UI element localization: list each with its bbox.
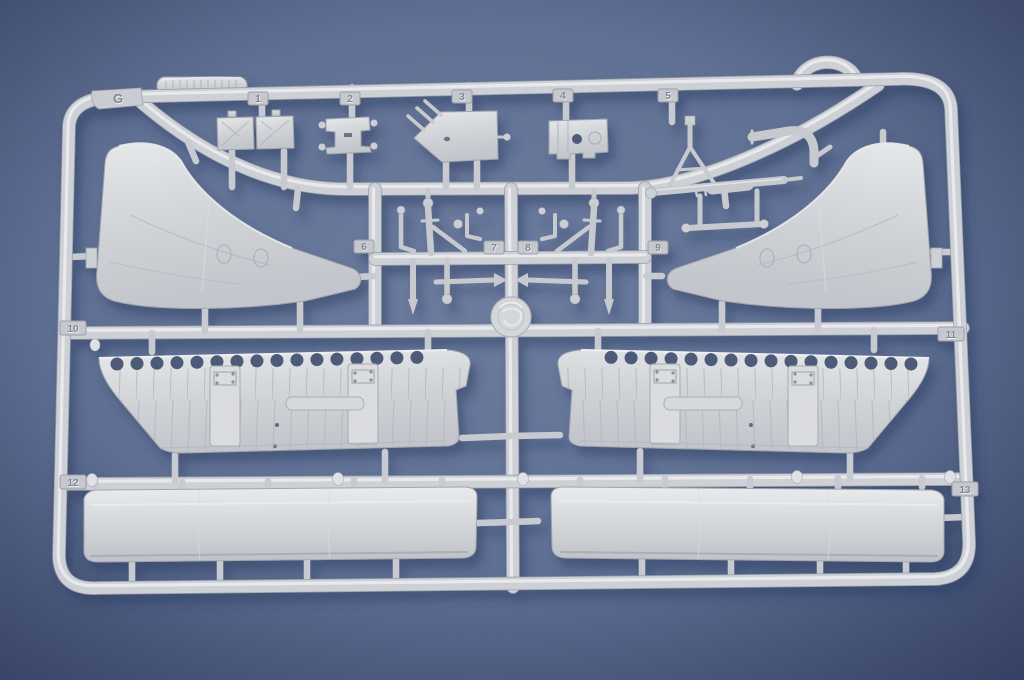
sprue-photo-canvas: G 1 2 3 4 5 6 7 8 9 10 11 12: [0, 0, 1024, 680]
frame-letter-tab: G: [92, 88, 143, 109]
part-tag-9: 9: [655, 243, 661, 254]
part-tag-6: 6: [361, 242, 367, 253]
sprue-photo: G 1 2 3 4 5 6 7 8 9 10 11 12: [0, 0, 1024, 680]
cluster-crossbar: [375, 255, 645, 259]
part-tag-11: 11: [946, 330, 957, 341]
part-tag-5: 5: [665, 91, 671, 102]
part-tag-12: 12: [67, 478, 79, 489]
spar-left: [99, 350, 470, 453]
part-tag-3: 3: [459, 92, 465, 103]
box-part: [549, 119, 608, 159]
spar-right: [558, 350, 929, 453]
part-tag-8: 8: [525, 243, 531, 254]
flap-panel-left: [84, 487, 477, 562]
part-tag-1: 1: [255, 94, 261, 105]
flap-panel-right: [551, 487, 944, 562]
runner-center-vertical: [510, 189, 514, 587]
runner-lower: [62, 476, 966, 484]
part-tag-13: 13: [959, 485, 971, 496]
frame-letter: G: [113, 91, 123, 106]
part-tag-4: 4: [560, 91, 566, 102]
part-tag-2: 2: [347, 94, 353, 105]
part-tag-10: 10: [67, 324, 79, 335]
molding-boss: [491, 297, 531, 337]
part-tag-7: 7: [491, 243, 497, 254]
